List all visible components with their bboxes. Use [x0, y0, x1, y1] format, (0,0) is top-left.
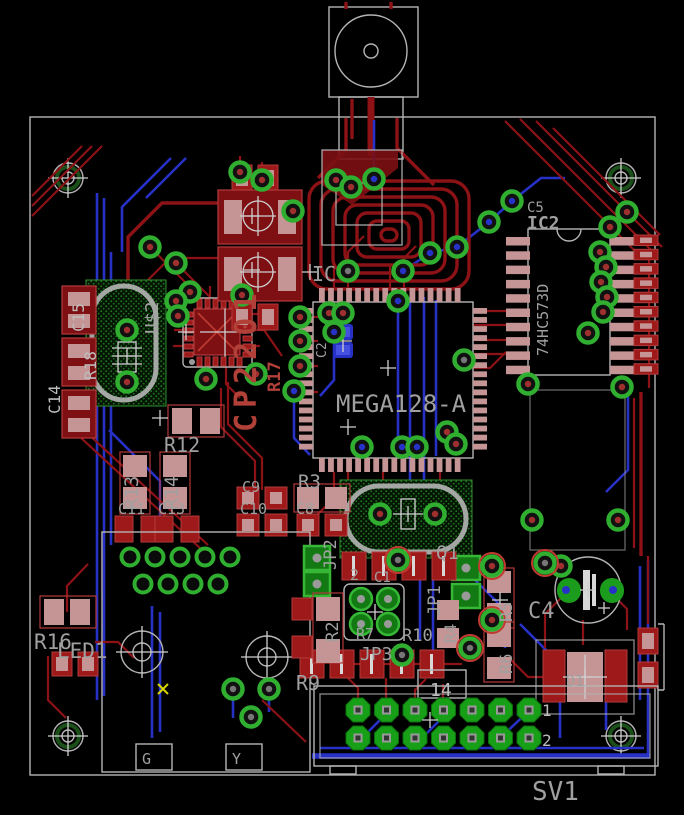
via[interactable] — [231, 163, 250, 182]
jack-pin-hole[interactable] — [172, 549, 189, 566]
label-c2: C2 — [315, 342, 330, 358]
jack-pin-hole[interactable] — [160, 576, 177, 593]
label-jp2: JP2 — [321, 539, 341, 570]
label-r18: R18 — [81, 351, 100, 380]
via[interactable] — [291, 332, 310, 351]
via[interactable] — [523, 511, 542, 530]
via[interactable] — [519, 375, 538, 394]
label-r12: R12 — [164, 433, 200, 457]
via[interactable] — [224, 680, 243, 699]
via[interactable] — [339, 262, 358, 281]
jack-pin-hole[interactable] — [122, 549, 139, 566]
jack-pin-hole[interactable] — [147, 549, 164, 566]
via[interactable] — [118, 373, 137, 392]
via[interactable] — [536, 554, 555, 573]
label-pin1: 1 — [542, 701, 552, 720]
via[interactable] — [169, 307, 188, 326]
jack-pin-hole[interactable] — [135, 576, 152, 593]
via[interactable] — [371, 505, 390, 524]
via[interactable] — [480, 213, 499, 232]
label-sv1: SV1 — [532, 777, 579, 807]
label-c1: C1 — [374, 570, 391, 586]
label-cp2201: CP2201 — [229, 288, 264, 432]
label-r7: R7 — [356, 625, 374, 643]
label-r9: R9 — [296, 671, 320, 695]
via[interactable] — [167, 254, 186, 273]
via[interactable] — [393, 646, 412, 665]
label-jp3: JP3 — [360, 644, 393, 665]
via[interactable] — [394, 262, 413, 281]
via[interactable] — [285, 382, 304, 401]
via[interactable] — [334, 304, 353, 323]
label-c10: C10 — [240, 500, 267, 518]
mount-hole[interactable] — [48, 158, 88, 198]
label-c14: C14 — [45, 385, 64, 414]
pcb-artwork: MEGA128-A IC C2 C5 IC2 74HC573D CP2201 R… — [0, 0, 684, 815]
via[interactable] — [389, 551, 408, 570]
label-u2: U$2 — [142, 301, 163, 334]
label-jp1: JP1 — [425, 585, 445, 616]
via[interactable] — [448, 238, 467, 257]
via[interactable] — [408, 438, 427, 457]
label-r6: R6 — [497, 654, 517, 674]
via[interactable] — [426, 505, 445, 524]
label-g: G — [142, 750, 151, 768]
label-jp2-pin2: 2 — [350, 566, 359, 584]
label-c15: C15 — [69, 303, 88, 332]
via[interactable] — [579, 324, 598, 343]
via[interactable] — [389, 292, 408, 311]
via[interactable] — [483, 557, 502, 576]
label-r10: R10 — [402, 626, 433, 646]
label-r5: R5 — [497, 602, 517, 622]
latch-pads — [506, 235, 658, 374]
jack-pin-hole[interactable] — [185, 576, 202, 593]
label-c9: C9 — [242, 478, 260, 496]
via[interactable] — [284, 202, 303, 221]
via[interactable] — [242, 708, 261, 727]
via[interactable] — [291, 357, 310, 376]
via[interactable] — [118, 321, 137, 340]
label-ic2: IC2 — [527, 213, 560, 234]
via[interactable] — [365, 170, 384, 189]
label-r17: R17 — [265, 361, 285, 392]
label-d1: D1 — [566, 672, 584, 690]
via[interactable] — [291, 308, 310, 327]
via[interactable] — [353, 438, 372, 457]
via[interactable] — [141, 238, 160, 257]
via[interactable] — [325, 323, 344, 342]
via[interactable] — [601, 218, 620, 237]
label-c8: C8 — [296, 500, 314, 518]
via[interactable] — [618, 203, 637, 222]
label-c13: C13 — [158, 500, 185, 518]
via[interactable] — [613, 378, 632, 397]
via[interactable] — [260, 680, 279, 699]
via[interactable] — [609, 511, 628, 530]
jack-holes — [122, 549, 239, 593]
label-r3: R3 — [298, 471, 321, 493]
pcb-canvas[interactable]: MEGA128-A IC C2 C5 IC2 74HC573D CP2201 R… — [0, 0, 684, 815]
jack-connector[interactable] — [102, 532, 310, 772]
label-pin2: 2 — [542, 731, 552, 750]
via[interactable] — [503, 192, 522, 211]
jack-pin-hole[interactable] — [222, 549, 239, 566]
label-c4: C4 — [528, 599, 555, 624]
label-y: Y — [232, 750, 241, 768]
label-mega128: MEGA128-A — [336, 390, 467, 418]
label-ic-ref: IC — [312, 262, 336, 286]
via[interactable] — [342, 178, 361, 197]
jack-target-hole[interactable] — [241, 631, 293, 683]
via[interactable] — [461, 639, 480, 658]
label-pin14: 14 — [430, 680, 452, 701]
label-q1: Q1 — [436, 542, 459, 564]
jack-pin-hole[interactable] — [197, 549, 214, 566]
via[interactable] — [253, 171, 272, 190]
label-c11: C11 — [118, 500, 145, 518]
label-r4: R4 — [441, 624, 460, 643]
via[interactable] — [594, 303, 613, 322]
via[interactable] — [455, 351, 474, 370]
via[interactable] — [447, 435, 466, 454]
coax-connector-outline — [329, 7, 418, 97]
latch-ic-74hc573[interactable] — [506, 229, 658, 375]
jack-pin-hole[interactable] — [210, 576, 227, 593]
label-r2: R2 — [323, 622, 343, 642]
label-led1: LED1 — [57, 639, 108, 663]
edge-component-right[interactable] — [638, 624, 664, 690]
label-74hc573: 74HC573D — [534, 284, 552, 356]
via[interactable] — [421, 244, 440, 263]
via[interactable] — [197, 370, 216, 389]
mount-hole[interactable] — [48, 716, 88, 756]
